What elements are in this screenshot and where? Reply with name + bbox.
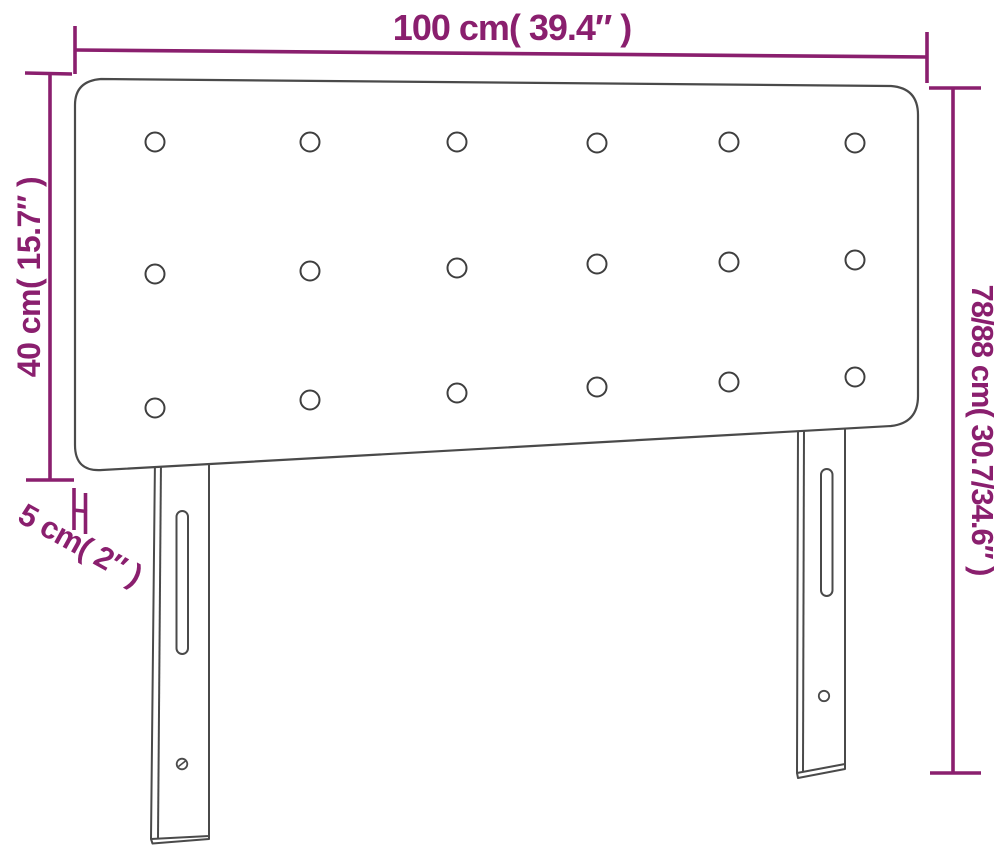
- tufting-button: [588, 378, 607, 397]
- tufting-button: [146, 399, 165, 418]
- right-leg-side-edge: [803, 428, 804, 771]
- tufting-button: [301, 133, 320, 152]
- tufting-button: [448, 133, 467, 152]
- tufting-button: [301, 391, 320, 410]
- left-leg: [151, 453, 209, 844]
- tufting-button: [146, 265, 165, 284]
- tufting-button: [846, 251, 865, 270]
- tufting-button: [588, 255, 607, 274]
- left-leg-slot: [177, 511, 189, 654]
- tufting-button: [846, 368, 865, 387]
- tufting-button: [301, 262, 320, 281]
- width-dimension-line: [75, 50, 927, 57]
- tufting-button: [448, 384, 467, 403]
- tufting-button: [146, 133, 165, 152]
- headboard-outline: [75, 79, 918, 470]
- right-height-dimension-label: 78/88 cm( 30.7/34.6″ ): [965, 285, 1000, 576]
- headboard-dimension-diagram: 100 cm( 39.4″ ) 40 cm( 15.7″ ) 78/88 cm(…: [0, 0, 1003, 857]
- tufting-button: [846, 134, 865, 153]
- right-leg-screw-hole: [819, 691, 829, 701]
- depth-dimension-line: [73, 510, 87, 512]
- tufting-button: [720, 133, 739, 152]
- left-height-dimension-label: 40 cm( 15.7″ ): [11, 177, 47, 377]
- width-dimension-label: 100 cm( 39.4″ ): [393, 7, 631, 48]
- tufting-button: [448, 259, 467, 278]
- left-height-dimension-tick-top: [25, 73, 72, 74]
- tufting-button: [720, 373, 739, 392]
- tufting-button: [588, 134, 607, 153]
- tufting-button: [720, 253, 739, 272]
- diagram-svg: 100 cm( 39.4″ ) 40 cm( 15.7″ ) 78/88 cm(…: [0, 0, 1003, 857]
- right-leg-slot: [821, 469, 833, 596]
- right-leg: [797, 421, 845, 778]
